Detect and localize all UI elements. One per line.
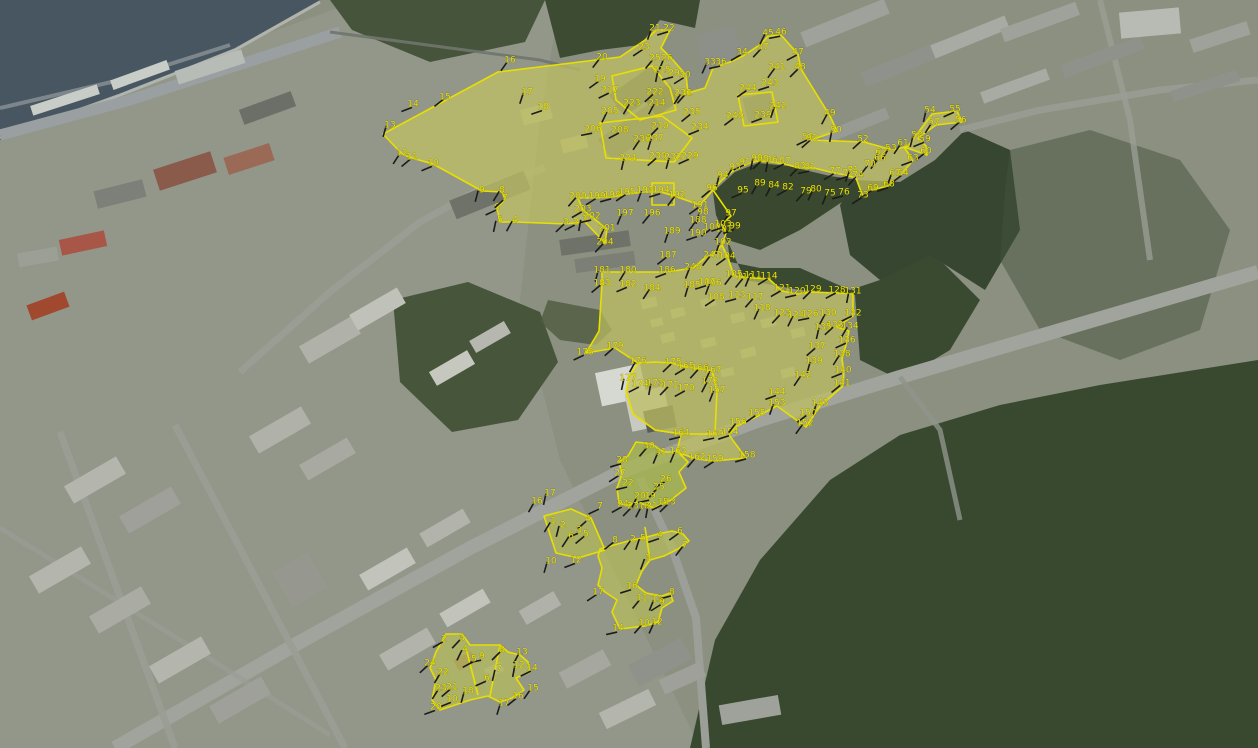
- vertex-label: 3: [576, 526, 582, 536]
- vertex-label: 131: [844, 287, 861, 297]
- vertex-label: 21: [446, 683, 457, 693]
- vertex-label: 73: [857, 191, 868, 201]
- vertex-label: 94: [717, 171, 729, 181]
- vertex-label: 96: [706, 184, 718, 194]
- vertex-label: 12: [570, 556, 581, 566]
- vertex-label: 49: [824, 109, 836, 119]
- vertex-label: 210: [651, 122, 668, 132]
- vertex-label: 175: [664, 358, 681, 368]
- vertex-label: 107: [698, 278, 715, 288]
- vertex-label: 9: [659, 598, 665, 608]
- vertex-label: 204: [596, 238, 613, 248]
- vertex-label: 13: [516, 648, 527, 658]
- vertex-label: 84: [768, 181, 780, 191]
- vertex-label: 121: [773, 284, 790, 294]
- vertex-label: 19: [594, 75, 606, 85]
- vertex-label: 16: [512, 692, 524, 702]
- vertex-label: 4: [512, 216, 518, 226]
- vertex-label: 142: [794, 371, 811, 381]
- vertex-label: 208: [611, 126, 628, 136]
- vertex-label: 48: [794, 63, 806, 73]
- vertex-label: 12: [651, 618, 662, 628]
- vertex-label: 8: [499, 646, 505, 656]
- vertex-label: 215: [653, 66, 670, 76]
- vertex-label: 232: [664, 153, 681, 163]
- vertex-label: 30: [643, 442, 655, 452]
- vertex-label: 7: [682, 541, 688, 551]
- vertex-label: 138: [833, 350, 850, 360]
- vertex-label: 81: [804, 163, 815, 173]
- vertex-label: 57: [928, 118, 939, 128]
- vertex-label: 6: [568, 532, 574, 542]
- vertex-label: 18: [537, 103, 549, 113]
- vertex-label: 171: [661, 381, 678, 391]
- vertex-label: 23: [638, 43, 649, 53]
- vertex-label: 70: [864, 160, 876, 170]
- vertex-label: 169: [706, 430, 723, 440]
- vertex-label: 16: [531, 497, 543, 507]
- vertex-label: 120: [788, 287, 805, 297]
- vertex-label: 90: [751, 154, 763, 164]
- vertex-label: 16: [626, 582, 638, 592]
- vertex-label: 6: [677, 527, 683, 537]
- vertex-label: 229: [681, 152, 698, 162]
- vertex-label: 5: [640, 534, 646, 544]
- vertex-label: 89: [754, 179, 766, 189]
- vertex-label: 157: [708, 386, 725, 396]
- vertex-label: 26: [661, 54, 673, 64]
- vertex-label: 82: [782, 183, 793, 193]
- vertex-label: 3: [563, 218, 569, 228]
- vertex-label: 52: [857, 135, 868, 145]
- vertex-label: 198: [603, 191, 620, 201]
- vertex-label: 203: [574, 205, 591, 215]
- vertex-label: 152: [796, 419, 813, 429]
- vertex-label: 108: [707, 293, 724, 303]
- vertex-label: 223: [623, 99, 640, 109]
- vertex-label: 25: [649, 54, 660, 64]
- vertex-label: 159: [706, 455, 723, 465]
- vertex-label: 187: [659, 251, 676, 261]
- vertex-label: 12: [513, 661, 524, 671]
- vertex-label: 154: [721, 428, 738, 438]
- vertex-label: 7: [496, 665, 502, 675]
- vertex-label: 177: [619, 374, 636, 384]
- vertex-label: 186: [658, 266, 675, 276]
- vertex-label: 75: [824, 189, 835, 199]
- vertex-label: 3: [459, 634, 465, 644]
- vertex-label: 103: [714, 220, 731, 230]
- vertex-label: 114: [760, 272, 777, 282]
- vertex-label: 180: [619, 266, 636, 276]
- vertex-label: 163: [669, 447, 686, 457]
- vertex-label: 205: [601, 107, 618, 117]
- vertex-label: 239: [754, 111, 771, 121]
- vertex-label: 139: [805, 357, 822, 367]
- vertex-label: 17: [498, 699, 509, 709]
- vertex-label: 158: [738, 451, 755, 461]
- vertex-label: 8: [612, 536, 618, 546]
- vertex-label: 237: [646, 134, 663, 144]
- vertex-label: 1: [550, 517, 556, 527]
- vertex-label: 13: [384, 121, 395, 131]
- vertex-label: 182: [619, 280, 636, 290]
- vertex-label: 10: [446, 695, 458, 705]
- vertex-label: 56: [955, 116, 967, 126]
- vertex-label: 87: [779, 157, 790, 167]
- vertex-label: 60: [920, 147, 932, 157]
- vertex-label: 30: [679, 71, 691, 81]
- vertex-label: 192: [668, 191, 685, 201]
- vertex-label: 10: [638, 619, 650, 629]
- vertex-label: 63: [907, 154, 918, 164]
- vertex-label: 17: [521, 88, 532, 98]
- vertex-label: 194: [652, 186, 669, 196]
- vertex-label: 14: [612, 624, 624, 634]
- vertex-label: 164: [672, 429, 689, 439]
- vertex-label: 91: [739, 158, 750, 168]
- vertex-label: 140: [834, 366, 851, 376]
- vertex-label: 141: [833, 379, 850, 389]
- vertex-label: 130: [819, 309, 836, 319]
- vertex-label: 50: [830, 126, 842, 136]
- vertex-label: 224: [619, 154, 636, 164]
- vertex-label: 17: [544, 489, 555, 499]
- vertex-label: 235: [683, 108, 700, 118]
- vertex-label: 16: [504, 56, 516, 66]
- vertex-label: 193: [636, 186, 653, 196]
- vertex-label: 27: [614, 469, 625, 479]
- vertex-label: 9: [479, 652, 485, 662]
- vertex-label: 68: [883, 180, 895, 190]
- vertex-label: 129: [804, 285, 821, 295]
- vertex-label: 241: [768, 63, 785, 73]
- vertex-label: 10: [545, 557, 557, 567]
- vertex-label: 247: [703, 251, 720, 261]
- vertex-label: 80: [810, 185, 822, 195]
- vertex-label: 126: [801, 310, 818, 320]
- vertex-label: 150: [799, 409, 816, 419]
- vertex-label: 13: [664, 498, 675, 508]
- vertex-label: 23: [627, 502, 638, 512]
- vertex-label: 172: [701, 377, 718, 387]
- vertex-label: 8: [669, 588, 675, 598]
- vertex-label: 190: [689, 229, 706, 239]
- vertex-label: 240: [726, 112, 743, 122]
- vertex-label: 28: [616, 456, 628, 466]
- vertex-label: 23: [435, 684, 446, 694]
- vertex-label: 167: [704, 366, 721, 376]
- vertex-label: 77: [829, 167, 840, 177]
- vertex-label: 132: [844, 309, 861, 319]
- vertex-label: 242: [769, 102, 786, 112]
- vertex-label: 97: [725, 209, 736, 219]
- vertex-label: 22: [663, 24, 674, 34]
- vertex-label: 2: [573, 218, 579, 228]
- vertex-label: 189: [663, 227, 680, 237]
- vertex-label: 24: [424, 659, 436, 669]
- vertex-label: 11: [636, 594, 647, 604]
- vertex-label: 178: [576, 348, 593, 358]
- vertex-label: 61: [897, 139, 908, 149]
- vertex-label: 113: [728, 291, 745, 301]
- vertex-label: 184: [643, 284, 660, 294]
- vertex-label: 36: [715, 58, 727, 68]
- satellite-canvas: 1234567891011121314151617181920212223252…: [0, 0, 1258, 748]
- vertex-label: 6: [484, 674, 490, 684]
- vertex-label: 22: [437, 668, 448, 678]
- vertex-label: 185: [683, 281, 700, 291]
- vertex-label: 156: [729, 418, 746, 428]
- vertex-label: 2: [441, 635, 447, 645]
- vertex-label: 136: [838, 336, 855, 346]
- vertex-label: 173: [646, 379, 663, 389]
- vertex-label: 244: [739, 84, 756, 94]
- vertex-label: 243: [761, 79, 778, 89]
- vertex-label: 34: [736, 48, 748, 58]
- vertex-label: 3: [645, 554, 651, 564]
- vertex-label: 195: [618, 188, 635, 198]
- vertex-label: 111: [744, 271, 761, 281]
- vertex-label: 76: [838, 188, 850, 198]
- vertex-label: 69: [867, 184, 879, 194]
- vertex-label: 46: [775, 28, 787, 38]
- vertex-label: 95: [737, 186, 748, 196]
- vertex-label: 170: [677, 384, 694, 394]
- vertex-label: 104: [718, 252, 735, 262]
- satellite-map-viewport[interactable]: 1234567891011121314151617181920212223252…: [0, 0, 1258, 748]
- vertex-label: 179: [606, 342, 623, 352]
- vertex-label: 200: [569, 192, 586, 202]
- vertex-label: 92: [806, 134, 817, 144]
- vertex-label: 22: [622, 479, 633, 489]
- vertex-label: 12: [396, 149, 407, 159]
- vertex-label: 18: [462, 687, 474, 697]
- vertex-label: 5: [583, 530, 589, 540]
- vertex-label: 196: [643, 209, 660, 219]
- building: [1119, 7, 1181, 38]
- vertex-label: 21: [649, 24, 660, 34]
- vertex-label: 2: [560, 521, 566, 531]
- vertex-label: 59: [919, 135, 931, 145]
- vertex-label: 83: [794, 162, 805, 172]
- vertex-label: 55: [949, 105, 960, 115]
- vertex-label: 37: [757, 43, 768, 53]
- vertex-label: 117: [746, 293, 763, 303]
- vertex-label: 5: [471, 655, 477, 665]
- vertex-label: 153: [768, 399, 785, 409]
- vertex-label: 74: [852, 171, 864, 181]
- vertex-label: 7: [597, 502, 603, 512]
- vertex-label: 20: [430, 703, 442, 713]
- vertex-label: 54: [924, 106, 936, 116]
- vertex-label: 66: [874, 154, 886, 164]
- vertex-label: 144: [768, 388, 785, 398]
- vertex-label: 206: [584, 125, 601, 135]
- vertex-label: 176: [629, 357, 646, 367]
- vertex-label: 191: [691, 201, 708, 211]
- vertex-label: 183: [593, 279, 610, 289]
- vertex-label: 93: [729, 163, 740, 173]
- vertex-label: 181: [593, 266, 610, 276]
- vertex-label: 31: [655, 448, 666, 458]
- vertex-label: 248: [684, 263, 701, 273]
- vertex-label: 4: [657, 531, 663, 541]
- vertex-label: 67: [889, 169, 900, 179]
- vertex-label: 19: [644, 492, 656, 502]
- vertex-label: 188: [689, 216, 706, 226]
- vertex-label: 222: [646, 88, 663, 98]
- vertex-label: 15: [527, 684, 538, 694]
- vertex-label: 47: [792, 48, 803, 58]
- vertex-label: 14: [526, 664, 538, 674]
- vertex-label: 214: [648, 99, 665, 109]
- vertex-label: 33: [704, 58, 715, 68]
- vertex-label: 197: [616, 209, 633, 219]
- vertex-label: 8: [499, 186, 505, 196]
- vertex-label: 128: [828, 286, 845, 296]
- vertex-label: 5: [497, 216, 503, 226]
- vertex-label: 199: [588, 192, 605, 202]
- vertex-label: 155: [748, 409, 765, 419]
- vertex-label: 11: [406, 153, 417, 163]
- vertex-label: 162: [688, 453, 705, 463]
- vertex-label: 2: [630, 535, 636, 545]
- vertex-label: 143: [811, 399, 828, 409]
- vertex-label: 4: [462, 645, 468, 655]
- vertex-label: 9: [479, 186, 485, 196]
- vertex-label: 15: [439, 93, 450, 103]
- vertex-label: 118: [753, 304, 770, 314]
- vertex-label: 201: [598, 224, 615, 234]
- vertex-label: 134: [841, 322, 858, 332]
- vertex-label: 17: [592, 588, 603, 598]
- vertex-label: 4: [585, 515, 591, 525]
- vertex-label: 234: [691, 123, 708, 133]
- vertex-label: 14: [407, 100, 419, 110]
- vertex-label: 217: [601, 86, 618, 96]
- vertex-label: 231: [674, 89, 691, 99]
- vertex-label: 20: [596, 53, 608, 63]
- vertex-label: 135: [814, 323, 831, 333]
- vertex-label: 137: [808, 342, 825, 352]
- vertex-label: 10: [427, 159, 439, 169]
- vertex-label: 102: [714, 238, 731, 248]
